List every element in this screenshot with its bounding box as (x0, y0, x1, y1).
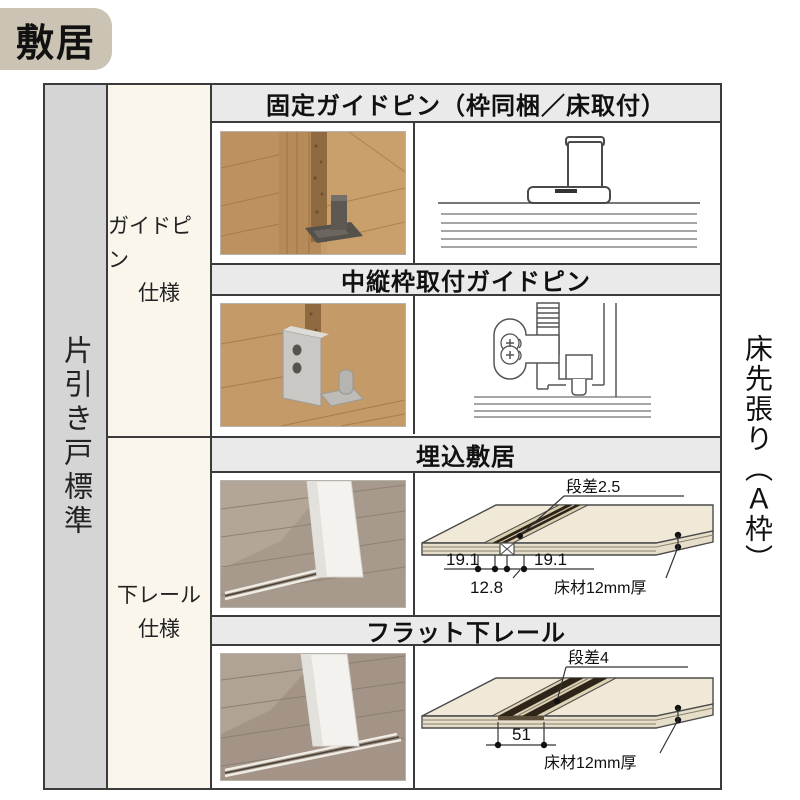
spec-guide-pin-line2: 仕様 (138, 277, 180, 311)
row-fixed-guide-pin (212, 123, 720, 263)
right-side-label: 床先張り（Ａ枠） (737, 334, 777, 574)
flat-rail-photo (220, 653, 406, 781)
embedded-sill-photo (220, 480, 406, 608)
spec-lower-rail-line1: 下レール (117, 579, 201, 613)
left-category-rail: 片引き戸標準 (43, 83, 108, 790)
spec-lower-rail-line2: 仕様 (138, 613, 180, 647)
photo-cell-embedded-sill (212, 473, 415, 615)
left-category-label: 片引き戸標準 (55, 335, 97, 539)
dim-right-label: 19.1 (534, 550, 567, 569)
spec-table-grid: ガイドピン 仕様 固定ガイドピン（枠同梱／床取付） (108, 83, 722, 790)
dim-width-label: 51 (512, 725, 531, 744)
fixed-guide-pin-photo (220, 131, 406, 255)
dim-left-label: 19.1 (446, 550, 479, 569)
row-header-fixed-guide-pin: 固定ガイドピン（枠同梱／床取付） (212, 85, 720, 123)
photo-cell-fixed-guide-pin (212, 123, 415, 263)
dim-inner-label: 12.8 (470, 578, 503, 597)
spec-guide-pin-line1: ガイドピン (108, 210, 210, 277)
page-title-badge: 敷居 (0, 8, 112, 70)
center-frame-guide-pin-photo (220, 303, 406, 427)
row-embedded-sill: 段差2.5 19.1 1 (212, 473, 720, 615)
row-header-embedded-sill: 埋込敷居 (212, 438, 720, 473)
spec-cell-guide-pin: ガイドピン 仕様 (108, 85, 212, 436)
dim-step-label: 段差2.5 (566, 478, 620, 496)
section-lower-rail: 下レール 仕様 埋込敷居 (108, 438, 720, 788)
flat-rail-diagram: 段差4 51 床材12mm厚 (415, 646, 720, 788)
dim-step-label-flat: 段差4 (568, 649, 609, 667)
row-header-flat-rail: フラット下レール (212, 615, 720, 646)
fixed-guide-pin-diagram (415, 123, 720, 263)
photo-cell-flat-rail (212, 646, 415, 788)
floor-note-label-flat: 床材12mm厚 (544, 754, 636, 772)
row-flat-rail: 段差4 51 床材12mm厚 (212, 646, 720, 788)
section-guide-pin: ガイドピン 仕様 固定ガイドピン（枠同梱／床取付） (108, 85, 720, 438)
row-header-center-frame-guide-pin: 中縦枠取付ガイドピン (212, 263, 720, 296)
row-center-frame-guide-pin (212, 296, 720, 434)
center-frame-guide-pin-diagram (415, 296, 720, 434)
spec-table: 片引き戸標準 ガイドピン 仕様 固定ガイドピン（枠同梱／床取付） (43, 83, 722, 790)
floor-note-label: 床材12mm厚 (554, 579, 646, 597)
photo-cell-center-frame-guide-pin (212, 296, 415, 434)
page-title: 敷居 (16, 12, 96, 67)
spec-cell-lower-rail: 下レール 仕様 (108, 438, 212, 788)
embedded-sill-diagram: 段差2.5 19.1 1 (415, 473, 720, 615)
